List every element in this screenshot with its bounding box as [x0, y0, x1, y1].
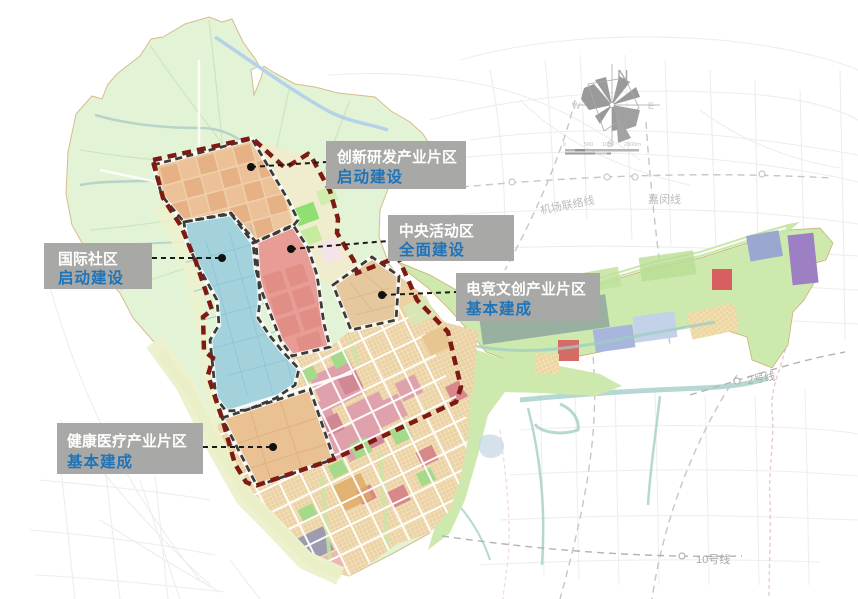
svg-text:2000m: 2000m: [624, 142, 641, 148]
svg-text:中央活动区: 中央活动区: [399, 222, 474, 240]
svg-text:启动建设: 启动建设: [58, 268, 124, 287]
svg-text:10号线: 10号线: [696, 552, 730, 566]
svg-text:创新研发产业片区: 创新研发产业片区: [336, 148, 457, 166]
svg-text:基本建成: 基本建成: [66, 452, 133, 471]
svg-text:基本建成: 基本建成: [465, 299, 532, 318]
svg-text:1000: 1000: [602, 142, 614, 148]
svg-text:W: W: [572, 101, 581, 111]
svg-text:嘉闵线: 嘉闵线: [648, 192, 681, 206]
svg-text:国际社区: 国际社区: [58, 250, 118, 268]
svg-text:0: 0: [563, 142, 566, 148]
svg-text:E: E: [648, 101, 654, 111]
svg-text:500: 500: [584, 142, 593, 148]
svg-text:全面建设: 全面建设: [398, 240, 465, 259]
svg-text:健康医疗产业片区: 健康医疗产业片区: [67, 432, 187, 450]
svg-text:电竞文创产业片区: 电竞文创产业片区: [466, 280, 586, 298]
svg-text:启动建设: 启动建设: [337, 167, 403, 186]
